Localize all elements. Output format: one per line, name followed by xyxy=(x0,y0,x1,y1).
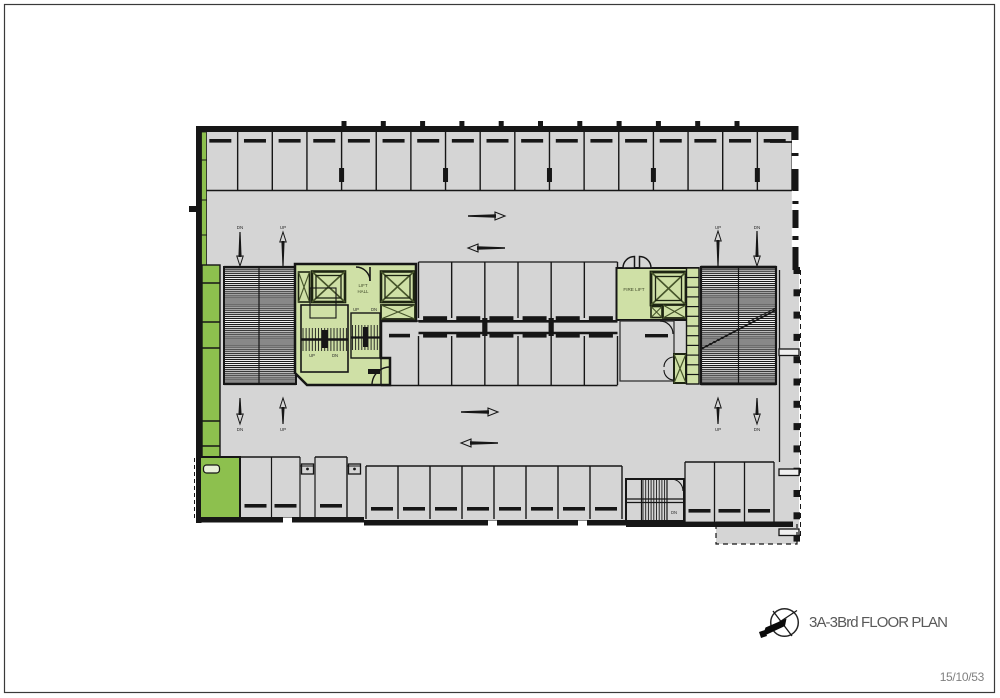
svg-text:FIRE LIFT: FIRE LIFT xyxy=(623,287,644,292)
svg-text:3A-3Brd FLOOR PLAN: 3A-3Brd FLOOR PLAN xyxy=(809,614,947,631)
svg-text:UP: UP xyxy=(715,427,721,432)
svg-text:UP: UP xyxy=(280,427,286,432)
svg-text:DN: DN xyxy=(754,427,761,432)
svg-text:UP: UP xyxy=(353,307,359,312)
svg-text:DN: DN xyxy=(754,225,761,230)
svg-text:15/10/53: 15/10/53 xyxy=(940,670,985,684)
svg-text:DN: DN xyxy=(671,510,677,515)
svg-text:DN: DN xyxy=(237,225,244,230)
svg-text:DN: DN xyxy=(332,353,338,358)
svg-text:DN: DN xyxy=(237,427,244,432)
svg-text:HALL: HALL xyxy=(358,289,370,294)
svg-text:UP: UP xyxy=(280,225,286,230)
svg-text:DN: DN xyxy=(371,307,377,312)
svg-text:LIFT: LIFT xyxy=(358,283,367,288)
svg-text:UP: UP xyxy=(309,353,315,358)
svg-text:UP: UP xyxy=(715,225,721,230)
